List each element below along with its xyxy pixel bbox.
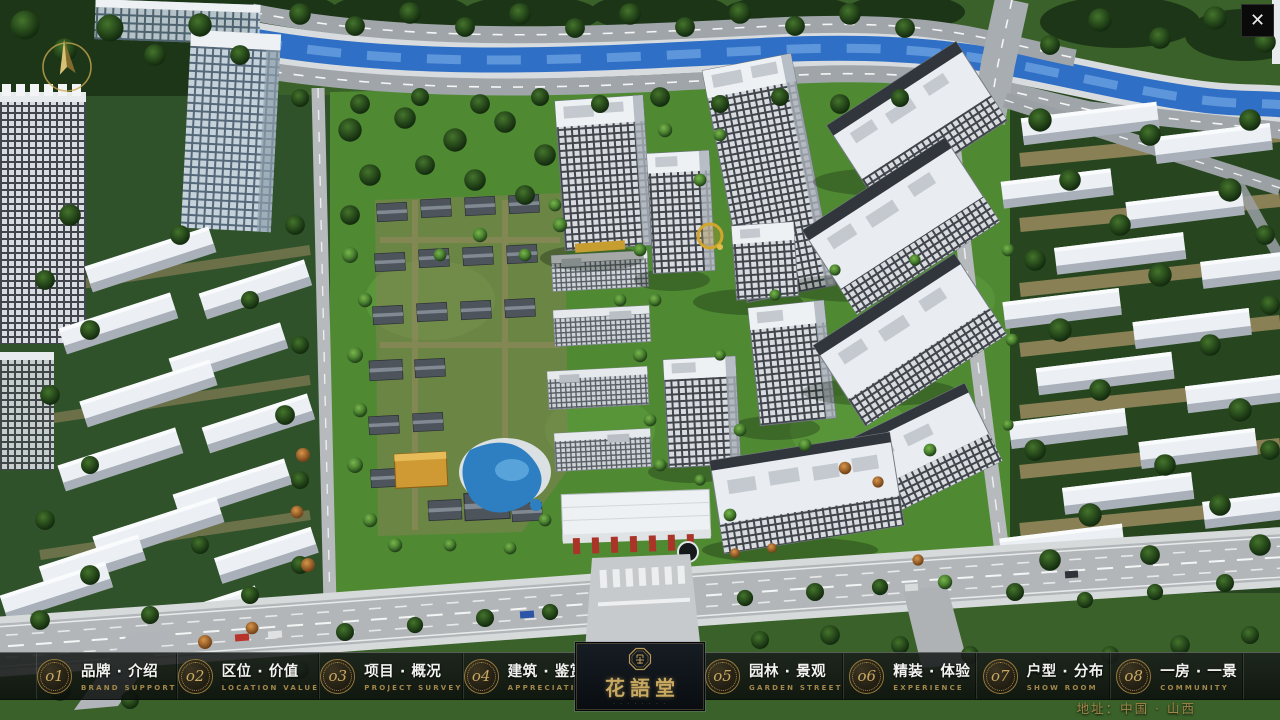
menu-label-en: PROJECT SURVEY — [364, 684, 462, 692]
menu-number-badge: o1 — [37, 659, 72, 694]
menu-item-architecture[interactable]: o4 建筑 · 鉴赏 APPRECIATION — [463, 653, 593, 699]
menu-label-cn: 园林 · 景观 — [749, 660, 826, 681]
menu-label-en: BRAND SUPPORT — [81, 684, 177, 692]
seal-icon — [628, 647, 652, 671]
menu-number-badge: o5 — [705, 659, 740, 694]
menu-item-floorplan-distribution[interactable]: o7 户型 · 分布 SHOW ROOM — [976, 653, 1109, 699]
menu-label-en: COMMUNITY — [1160, 684, 1229, 692]
menu-label-en: GARDEN STREET — [749, 684, 843, 692]
menu-group-left: o1 品牌 · 介绍 BRAND SUPPORT o2 区位 · 价值 LOCA… — [36, 653, 576, 699]
close-button[interactable]: ✕ — [1241, 4, 1274, 37]
menu-label-cn: 品牌 · 介绍 — [81, 660, 158, 681]
project-tagline: · · · · · · · · — [613, 702, 667, 706]
menu-item-landscape[interactable]: o5 园林 · 景观 GARDEN STREET — [704, 653, 843, 699]
menu-item-location-value[interactable]: o2 区位 · 价值 LOCATION VALUE — [177, 653, 320, 699]
menu-group-right: o5 园林 · 景观 GARDEN STREET o6 精装 · 体验 EXPE… — [704, 653, 1244, 699]
project-address: 地址：中国 · 山西 — [1077, 698, 1196, 717]
menu-number-badge: o7 — [983, 659, 1018, 694]
menu-number-badge: o3 — [320, 659, 355, 694]
menu-item-project-overview[interactable]: o3 项目 · 概况 PROJECT SURVEY — [319, 653, 462, 699]
menu-number-badge: o8 — [1116, 659, 1151, 694]
menu-label-en: SHOW ROOM — [1027, 684, 1098, 692]
presentation-viewport: ✕ o1 品牌 · 介绍 BRAND SUPPORT o2 区位 · 价值 LO… — [0, 0, 1280, 720]
close-icon: ✕ — [1250, 12, 1265, 30]
menu-item-interior-experience[interactable]: o6 精装 · 体验 EXPERIENCE — [843, 653, 976, 699]
compass-icon[interactable] — [36, 32, 98, 98]
project-name: 花語堂 — [600, 672, 680, 701]
menu-label-cn: 精装 · 体验 — [893, 660, 970, 681]
menu-label-cn: 建筑 · 鉴赏 — [508, 660, 585, 681]
menu-label-en: EXPERIENCE — [893, 684, 964, 692]
menu-number-badge: o4 — [464, 659, 499, 694]
menu-number-badge: o2 — [178, 659, 213, 694]
menu-label-en: LOCATION VALUE — [222, 684, 320, 692]
menu-label-cn: 户型 · 分布 — [1027, 660, 1104, 681]
menu-item-brand-intro[interactable]: o1 品牌 · 介绍 BRAND SUPPORT — [36, 653, 177, 699]
menu-label-cn: 区位 · 价值 — [222, 660, 299, 681]
menu-label-cn: 项目 · 概况 — [364, 660, 441, 681]
project-logo-panel: 花語堂 · · · · · · · · — [575, 642, 705, 711]
menu-number-badge: o6 — [849, 659, 884, 694]
aerial-render-view[interactable] — [0, 0, 1280, 720]
menu-label-cn: 一房 · 一景 — [1160, 660, 1237, 681]
menu-item-room-view[interactable]: o8 一房 · 一景 COMMUNITY — [1110, 653, 1244, 699]
